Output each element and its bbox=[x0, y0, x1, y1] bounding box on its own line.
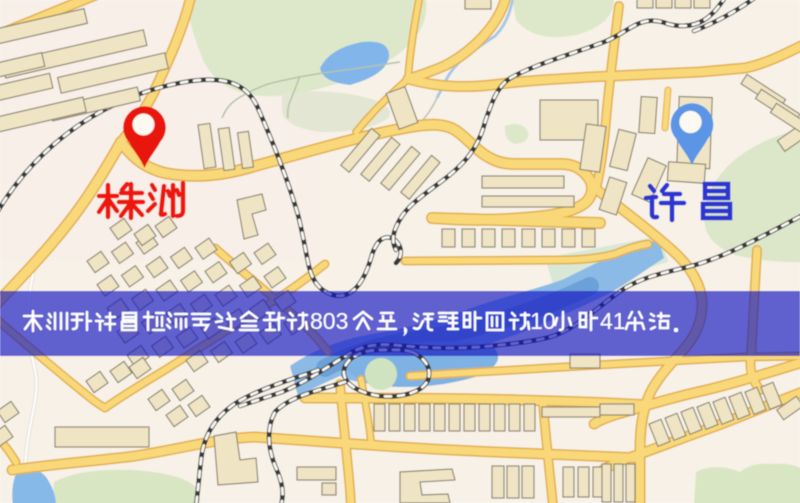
svg-text:10: 10 bbox=[530, 308, 556, 334]
svg-text:803: 803 bbox=[310, 308, 348, 334]
svg-text:41: 41 bbox=[600, 308, 626, 334]
